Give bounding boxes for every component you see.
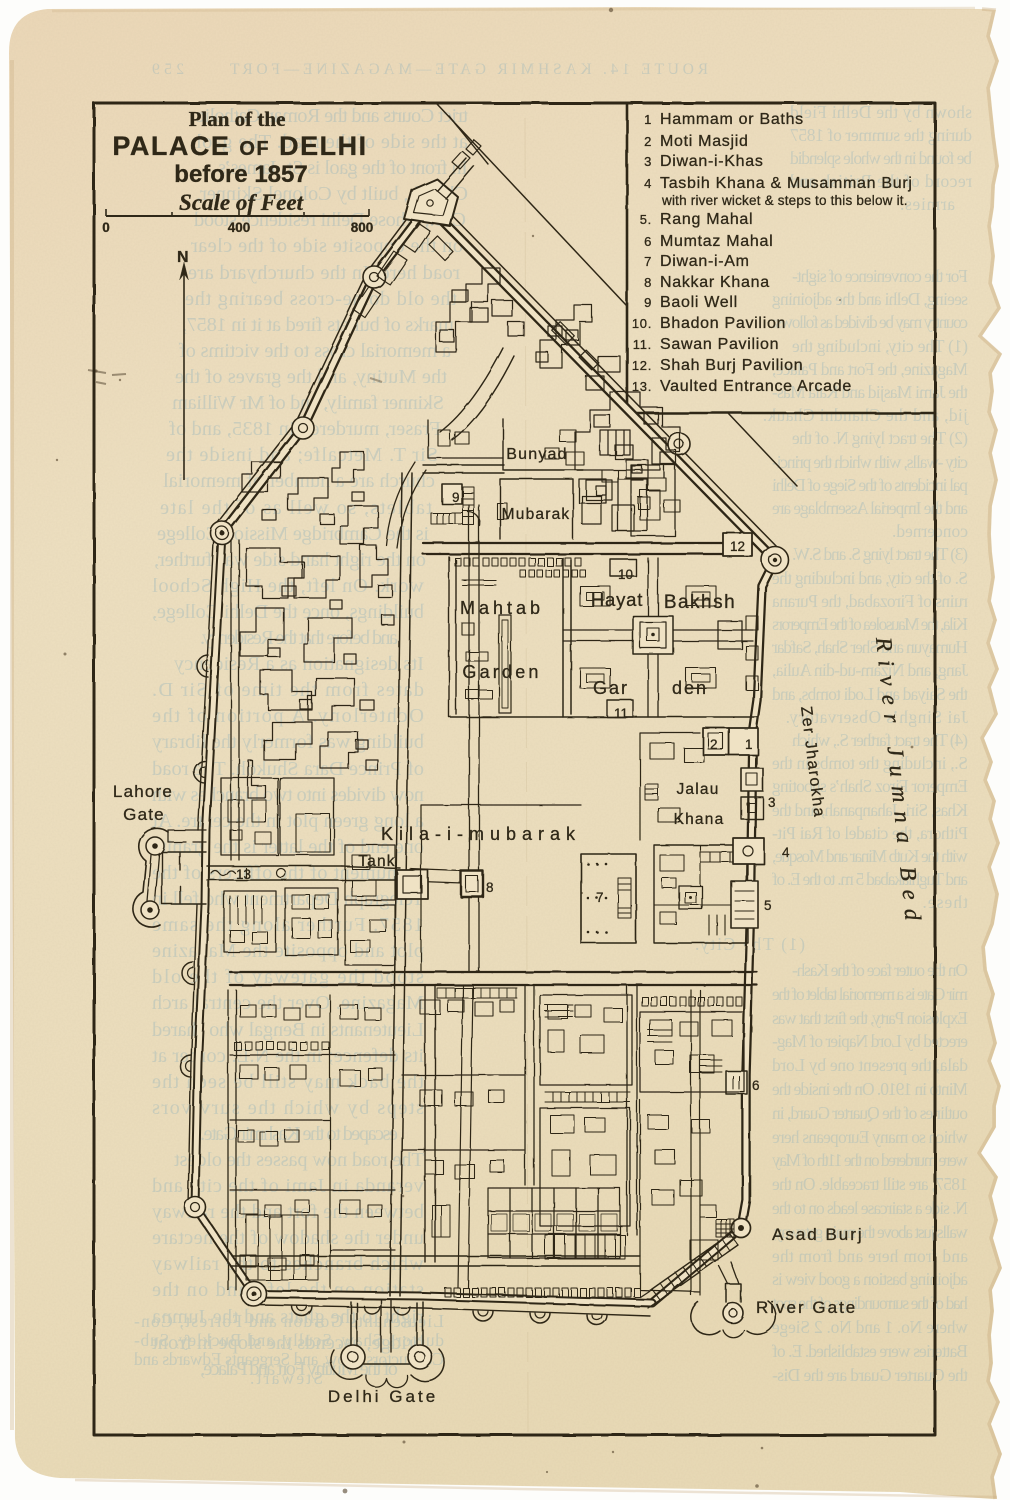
svg-text:On the outer face of the Kash-: On the outer face of the Kash- bbox=[792, 960, 968, 980]
svg-text:6: 6 bbox=[752, 1078, 760, 1093]
svg-text:Delhi Gate: Delhi Gate bbox=[328, 1387, 438, 1406]
svg-text:Jang, and Nizam-ud-din Aulia,: Jang, and Nizam-ud-din Aulia, bbox=[772, 660, 968, 680]
svg-text:N: N bbox=[177, 249, 189, 266]
svg-text:S., including the tombs in the: S., including the tombs in the bbox=[772, 753, 968, 773]
svg-text:5: 5 bbox=[764, 898, 772, 913]
svg-text:9: 9 bbox=[452, 490, 460, 505]
svg-text:13.: 13. bbox=[632, 379, 652, 394]
svg-text:Gar: Gar bbox=[593, 678, 629, 698]
svg-text:dates from the time of Sir D.: dates from the time of Sir D. bbox=[152, 679, 424, 701]
svg-text:5.: 5. bbox=[640, 212, 652, 227]
svg-text:800: 800 bbox=[351, 220, 374, 235]
svg-text:the old dome-cross bearing the: the old dome-cross bearing the bbox=[185, 288, 457, 310]
svg-text:where No. 1 and No. 2 Siege: where No. 1 and No. 2 Siege bbox=[772, 1317, 968, 1337]
svg-text:now divides into two branches: now divides into two branches with bbox=[152, 784, 424, 806]
svg-text:these.: these. bbox=[922, 892, 968, 912]
svg-text:and the Imperial Assemblage ar: and the Imperial Assemblage are bbox=[772, 498, 968, 518]
svg-text:ductors Shaw, Scully, and Buck: ductors Shaw, Scully, and Buckley, Sub- bbox=[134, 1330, 444, 1350]
svg-text:Mumtaz Mahal: Mumtaz Mahal bbox=[660, 233, 773, 250]
svg-text:Explosion Party, the first tha: Explosion Party, the first that was bbox=[772, 1008, 968, 1028]
svg-text:the Mutiny, and the graves of: the Mutiny, and the graves of the bbox=[175, 366, 447, 388]
svg-text:3: 3 bbox=[644, 154, 652, 169]
svg-text:Mahtab: Mahtab bbox=[460, 598, 544, 618]
svg-text:dala, the present one by Lord: dala, the present one by Lord bbox=[772, 1055, 968, 1075]
svg-text:on the opposite side of the cl: on the opposite side of the clear bbox=[191, 235, 463, 257]
svg-text:armies.: armies. bbox=[900, 194, 955, 214]
svg-text:3: 3 bbox=[768, 795, 776, 810]
svg-text:1857. Further along the same: 1857. Further along the same bbox=[152, 914, 424, 936]
svg-text:Plan of the: Plan of the bbox=[189, 107, 286, 131]
svg-text:which so many Europeans here: which so many Europeans here bbox=[772, 1127, 968, 1147]
svg-text:(2) The tract lying N. of the: (2) The tract lying N. of the bbox=[792, 428, 968, 448]
svg-text:Vaulted Entrance Arcade: Vaulted Entrance Arcade bbox=[660, 378, 852, 395]
svg-text:city -walls, with which the pr: city -walls, with which the princi- bbox=[772, 452, 968, 472]
svg-text:Diwan-i-Khas: Diwan-i-Khas bbox=[660, 153, 764, 170]
svg-text:Hammam or Baths: Hammam or Baths bbox=[660, 111, 804, 128]
svg-text:Rang Mahal: Rang Mahal bbox=[660, 211, 753, 228]
svg-text:10: 10 bbox=[618, 567, 633, 582]
svg-text:and before that the Residency.: and before that the Residency. bbox=[200, 627, 398, 649]
svg-text:on the right hand side was fur: on the right hand side was further, bbox=[154, 549, 426, 571]
svg-text:den: den bbox=[672, 678, 708, 698]
svg-text:11.: 11. bbox=[633, 337, 652, 352]
svg-text:11: 11 bbox=[614, 706, 628, 721]
svg-text:8: 8 bbox=[644, 275, 652, 290]
svg-text:Emperor Firoz Shah’s shooting: Emperor Firoz Shah’s shooting bbox=[772, 776, 968, 796]
svg-text:8: 8 bbox=[486, 880, 494, 895]
svg-text:9: 9 bbox=[644, 295, 652, 310]
svg-text:1: 1 bbox=[644, 112, 652, 127]
svg-text:S. of the city, and including: S. of the city, and including the bbox=[772, 568, 968, 588]
svg-text:Asad Burj: Asad Burj bbox=[772, 1225, 864, 1244]
svg-text:the Saiyad and Lodi tombs, and: the Saiyad and Lodi tombs, and bbox=[772, 684, 968, 704]
svg-text:shown by the Delhi Field: shown by the Delhi Field bbox=[790, 102, 972, 122]
svg-text:4: 4 bbox=[644, 176, 652, 191]
svg-text:Hayat: Hayat bbox=[591, 589, 643, 610]
svg-text:(3) The tract lying S. and S.W: (3) The tract lying S. and S.W. bbox=[792, 544, 968, 564]
svg-text:adjoining bastion a good view: adjoining bastion a good view is bbox=[772, 1269, 968, 1289]
svg-text:N. side a staircase leads on t: N. side a staircase leads on to the bbox=[772, 1198, 968, 1218]
svg-text:1: 1 bbox=[745, 737, 753, 752]
svg-text:Gate: Gate bbox=[123, 805, 165, 824]
svg-text:Bakhsh: Bakhsh bbox=[664, 592, 736, 613]
svg-text:Kila-i-mubarak: Kila-i-mubarak bbox=[381, 824, 581, 844]
svg-text:The road now passes the oldest: The road now passes the oldest bbox=[174, 1149, 424, 1171]
svg-text:Moti Masjid: Moti Masjid bbox=[660, 133, 749, 150]
svg-text:Minto in 1910. On the inside: Minto in 1910. On the inside the bbox=[772, 1079, 968, 1099]
svg-text:seeing, Delhi and the adjoinin: seeing, Delhi and the adjoining bbox=[772, 289, 968, 309]
svg-text:under the shadow of the hectar: under the shadow of the hectare bbox=[152, 1227, 424, 1249]
svg-text:the Quarter Guard are the Dis-: the Quarter Guard are the Dis- bbox=[772, 1365, 968, 1385]
svg-text:church are a number of memoria: church are a number of memorial bbox=[163, 470, 435, 492]
svg-text:a memorial cross to the victim: a memorial cross to the victims of bbox=[179, 340, 451, 362]
svg-text:marks of bullets fired at it i: marks of bullets fired at it in 1857, bbox=[182, 314, 454, 336]
svg-text:400: 400 bbox=[228, 220, 251, 235]
svg-text:River Gate: River Gate bbox=[756, 1298, 857, 1317]
svg-text:Sir T. Metcalfe; and inside th: Sir T. Metcalfe; and inside the bbox=[166, 444, 438, 466]
svg-text:Garden: Garden bbox=[462, 662, 541, 682]
svg-text:7: 7 bbox=[596, 890, 604, 905]
svg-text:(1) The city, including the: (1) The city, including the bbox=[792, 336, 968, 356]
svg-text:Tank: Tank bbox=[358, 853, 396, 870]
svg-text:country may be divided as foll: country may be divided as follows: bbox=[772, 312, 968, 332]
svg-text:10.: 10. bbox=[632, 316, 652, 331]
svg-text:Bunyad: Bunyad bbox=[506, 446, 567, 463]
svg-text:with the Kutb Minar and Mosque: with the Kutb Minar and Mosque, bbox=[772, 846, 968, 866]
svg-text:erected by Lord Napier of Mag-: erected by Lord Napier of Mag- bbox=[772, 1031, 968, 1051]
svg-text:ruins of Firozabad, the Purana: ruins of Firozabad, the Purana bbox=[772, 591, 968, 611]
svg-text:its defence; in the N.E. corne: its defence; in the N.E. corner at bbox=[152, 1045, 424, 1067]
svg-text:Diwan-i-Am: Diwan-i-Am bbox=[660, 253, 750, 270]
svg-text:Telegraph Department who fell: Telegraph Department who fell in bbox=[152, 888, 424, 910]
svg-text:12.: 12. bbox=[632, 358, 652, 373]
svg-text:Ochterlony. A portion of the: Ochterlony. A portion of the bbox=[152, 705, 424, 727]
svg-text:of Prince Dara Shukoh. The roa: of Prince Dara Shukoh. The road bbox=[152, 758, 424, 780]
svg-text:during the summer of 1857: during the summer of 1857 bbox=[790, 125, 972, 145]
svg-text:and Tughlakabad 5 m. to the E.: and Tughlakabad 5 m. to the E. of bbox=[772, 869, 968, 889]
svg-text:outlines of the Quarter Guard,: outlines of the Quarter Guard, in bbox=[772, 1103, 968, 1123]
svg-text:Pithora, the citadel of Rai Pi: Pithora, the citadel of Rai Pit- bbox=[772, 823, 968, 843]
svg-text:Bhadon Pavilion: Bhadon Pavilion bbox=[660, 315, 786, 332]
svg-text:0: 0 bbox=[102, 220, 110, 235]
svg-text:pal incidents of the Siege of: pal incidents of the Siege of Delhi bbox=[772, 475, 968, 495]
svg-text:13: 13 bbox=[236, 867, 251, 882]
svg-text:with river wicket & steps to t: with river wicket & steps to this below … bbox=[661, 193, 908, 208]
svg-text:Sawan Pavilion: Sawan Pavilion bbox=[660, 336, 779, 353]
svg-text:Jalau: Jalau bbox=[676, 781, 719, 798]
svg-text:plot and opposite the Magazine: plot and opposite the Magazine bbox=[152, 940, 424, 962]
svg-text:buildings, once the Delhi Coll: buildings, once the Delhi College, bbox=[152, 601, 424, 623]
svg-text:the back may still be seen the: the back may still be seen the bbox=[152, 1071, 424, 1093]
svg-text:12: 12 bbox=[730, 539, 745, 554]
svg-text:concerned.: concerned. bbox=[892, 521, 968, 541]
svg-text:jid, and the Chandni Chauk.: jid, and the Chandni Chauk. bbox=[763, 405, 969, 425]
svg-text:Tasbih Khana & Musamman Burj: Tasbih Khana & Musamman Burj bbox=[660, 175, 913, 192]
svg-text:Kila, the Mausolea of the Empe: Kila, the Mausolea of the Emperors bbox=[772, 614, 968, 634]
svg-text:and from here and from the: and from here and from the bbox=[772, 1246, 968, 1266]
svg-text:7: 7 bbox=[644, 254, 652, 269]
svg-text:259: 259 bbox=[152, 61, 184, 78]
svg-text:For the convenience of sight-: For the convenience of sight- bbox=[792, 266, 968, 286]
svg-text:Batteries were established. E: Batteries were established. E. of bbox=[772, 1341, 968, 1361]
svg-text:were murdered on the 11th of M: were murdered on the 11th of May bbox=[772, 1150, 968, 1170]
svg-text:Nakkar Khana: Nakkar Khana bbox=[660, 274, 770, 291]
svg-text:before 1857: before 1857 bbox=[174, 161, 307, 188]
svg-text:be found in the whole splendid: be found in the whole splendid bbox=[790, 148, 972, 168]
svg-text:Mubarak: Mubarak bbox=[502, 506, 571, 523]
svg-text:Lahore: Lahore bbox=[113, 782, 173, 801]
svg-text:4: 4 bbox=[782, 845, 790, 860]
svg-text:Baoli Well: Baoli Well bbox=[660, 294, 738, 311]
svg-text:mir Gate is a memorial tablet: mir Gate is a memorial tablet of the bbox=[772, 984, 968, 1004]
svg-text:2: 2 bbox=[644, 134, 652, 149]
svg-text:Humayun and Sher Shah, Safdar: Humayun and Sher Shah, Safdar bbox=[772, 637, 968, 657]
svg-text:2: 2 bbox=[710, 737, 718, 752]
svg-text:Stewart.: Stewart. bbox=[250, 1368, 323, 1388]
svg-text:Conductors Crow, and Sergeants: Conductors Crow, and Sergeants Edwards a… bbox=[134, 1349, 444, 1369]
svg-text:Scale of Feet: Scale of Feet bbox=[179, 190, 304, 215]
svg-text:building was formerly the libr: building was formerly the library bbox=[151, 731, 424, 753]
svg-text:Khana: Khana bbox=[674, 811, 725, 828]
svg-text:road here. In the churchyard a: road here. In the churchyard are bbox=[188, 262, 460, 284]
svg-text:Khas, Siri, Jahanpanah, and th: Khas, Siri, Jahanpanah, and the bbox=[772, 800, 968, 820]
svg-text:6: 6 bbox=[644, 234, 652, 249]
svg-text:1857, are still traceable. On: 1857, are still traceable. On the bbox=[772, 1174, 968, 1194]
svg-text:Shah Burj Pavilion: Shah Burj Pavilion bbox=[660, 357, 803, 374]
